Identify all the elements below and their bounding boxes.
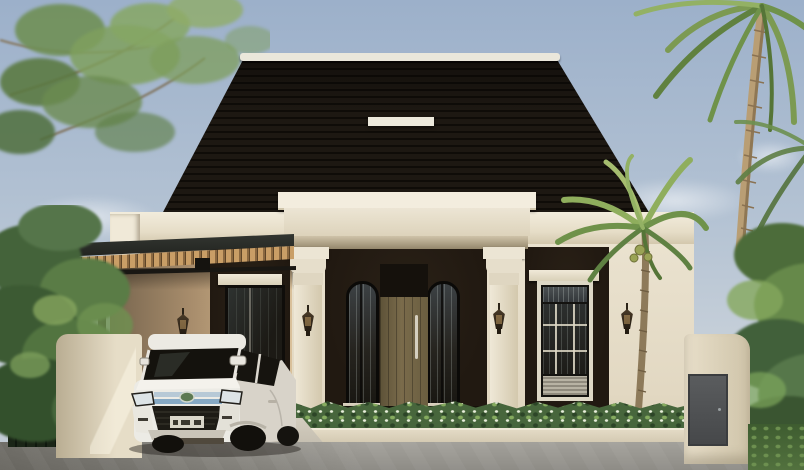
left-pilaster-capital	[290, 259, 326, 273]
wheel	[152, 435, 184, 453]
carport-downlight	[195, 258, 210, 270]
car-hood	[136, 378, 240, 390]
right-lawn	[748, 424, 804, 470]
side-gate	[688, 374, 728, 446]
door-transom	[380, 264, 428, 298]
ridge-cap	[240, 53, 560, 61]
side-mirror	[140, 358, 149, 365]
right-pilaster-capital	[483, 247, 525, 259]
porch-arched-window-right	[427, 281, 460, 407]
door-handle	[415, 315, 418, 359]
portico-cornice-frieze	[284, 208, 530, 236]
wall-lamp	[492, 303, 506, 335]
foglight-slit	[222, 416, 232, 419]
arched-window-muntin	[360, 284, 362, 404]
left-pilaster-neck	[293, 273, 323, 285]
porch-arched-window-left	[346, 281, 379, 407]
headlight-left	[132, 392, 154, 406]
house-exterior-render	[0, 0, 804, 470]
right-pilaster-neck	[489, 273, 519, 285]
right-pilaster-capital	[486, 259, 522, 273]
wheel	[277, 426, 299, 446]
headlight-right	[220, 390, 242, 404]
roof-skylight	[368, 117, 434, 126]
foglight-slit	[138, 418, 148, 421]
plate-characters	[173, 420, 201, 425]
white-mpv-car	[120, 330, 304, 458]
side-mirror	[230, 356, 246, 365]
arched-window-muntin	[441, 284, 443, 404]
car-roof	[148, 334, 246, 350]
front-door	[380, 297, 428, 411]
car-emblem	[180, 392, 194, 402]
left-window-head-casing	[218, 274, 282, 285]
wheel	[230, 425, 266, 451]
door-handle-side	[268, 400, 277, 403]
